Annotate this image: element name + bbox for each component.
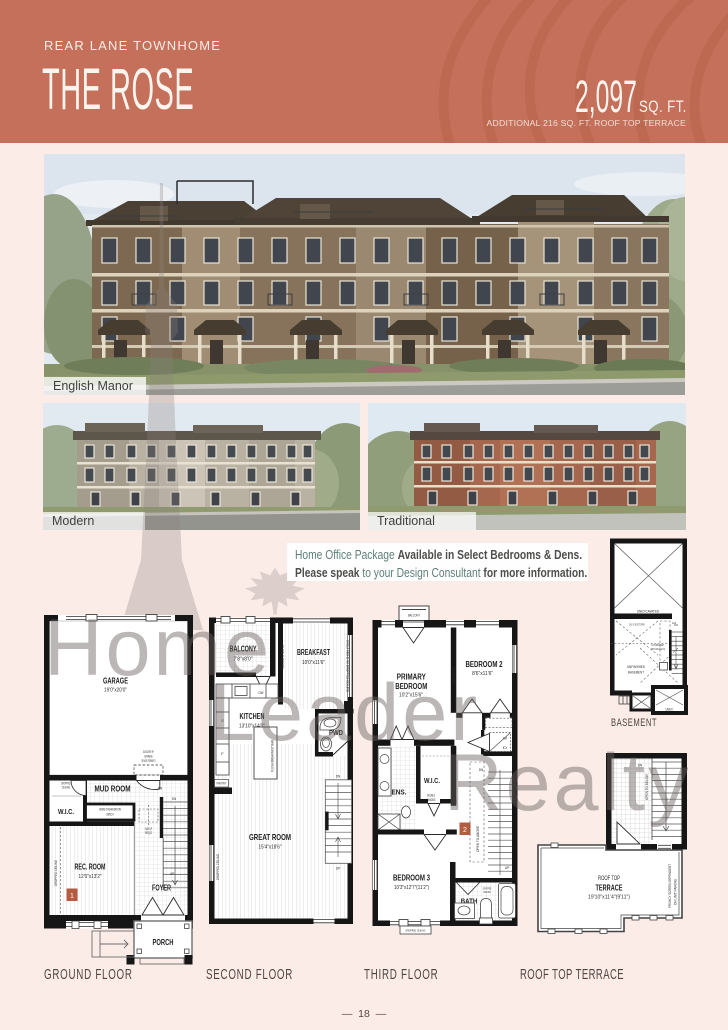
svg-text:KITCHEN: KITCHEN [240,712,265,721]
svg-text:ROOF TOP: ROOF TOP [598,876,620,882]
svg-text:HOME ORGANIZATION: HOME ORGANIZATION [99,808,121,812]
svg-text:FLUSH BREAKFAST BAR: FLUSH BREAKFAST BAR [271,739,275,772]
svg-text:BI-FOLD DOORS: BI-FOLD DOORS [281,645,285,669]
svg-text:BEDROOM 2: BEDROOM 2 [466,660,503,669]
svg-text:MUD ROOM: MUD ROOM [95,785,131,794]
svg-text:ON UNIT PAIRING: ON UNIT PAIRING [674,879,678,905]
svg-text:15'4"x18'6": 15'4"x18'6" [259,845,282,851]
svg-text:BASEMENT: BASEMENT [628,670,644,675]
svg-text:GRADE: GRADE [144,755,153,759]
svg-text:PRIMARY: PRIMARY [397,673,427,682]
svg-text:19'0"x20'0": 19'0"x20'0" [104,688,127,694]
svg-text:PWD: PWD [329,730,343,737]
svg-text:OPEN TO BELOW: OPEN TO BELOW [645,773,649,800]
svg-text:UNEX.: UNEX. [666,708,674,712]
svg-text:CEILING: CEILING [483,890,491,894]
svg-text:W.I.C.: W.I.C. [58,809,74,816]
svg-text:SHELF NICHE W/ DROPPED CEILING: SHELF NICHE W/ DROPPED CEILING [345,640,349,692]
svg-text:DROPPED CEILING: DROPPED CEILING [406,929,426,933]
svg-text:PANTRY: PANTRY [217,782,228,786]
svg-text:DN: DN [172,797,177,801]
svg-text:10'2"x15'6": 10'2"x15'6" [399,693,423,699]
svg-text:DN: DN [638,764,643,768]
svg-text:UNFINISHED: UNFINISHED [627,664,645,669]
svg-text:TERRACE: TERRACE [596,883,623,893]
svg-text:12'0"x13'2": 12'0"x13'2" [79,874,102,880]
svg-text:DOOR IF: DOOR IF [143,750,155,754]
svg-text:BENCH: BENCH [107,813,114,817]
svg-text:1: 1 [70,893,74,900]
svg-text:BALCONY: BALCONY [230,645,257,654]
svg-text:ENS.: ENS. [392,790,407,797]
svg-text:DN: DN [158,787,163,791]
svg-text:UP: UP [170,872,175,876]
svg-text:DROPPED CEILING: DROPPED CEILING [216,854,220,880]
svg-text:CAC IF DUCTS PER.: CAC IF DUCTS PER. [629,623,645,627]
svg-text:DW: DW [259,691,264,695]
svg-text:PORCH: PORCH [153,938,174,947]
svg-text:7'8"x8'0": 7'8"x8'0" [234,657,253,663]
svg-text:OPEN TO ABOVE: OPEN TO ABOVE [476,825,480,852]
svg-text:8'6"x11'6": 8'6"x11'6" [472,671,493,677]
svg-text:BREAKFAST: BREAKFAST [297,648,330,657]
svg-text:O/H ATTIC: O/H ATTIC [452,665,456,684]
svg-text:PRIVACY SCREEN DEPENDENT: PRIVACY SCREEN DEPENDENT [668,864,672,908]
svg-text:FOYER: FOYER [152,884,171,893]
svg-text:W.I.C.: W.I.C. [424,778,440,785]
svg-text:CEILING: CEILING [62,786,71,790]
svg-text:10'3"x12'7"(11'2"): 10'3"x12'7"(11'2") [394,885,429,891]
svg-text:REQ'D: REQ'D [145,831,152,835]
svg-text:GARAGE: GARAGE [103,677,128,686]
svg-text:DN: DN [479,768,484,772]
svg-text:UP: UP [336,867,341,871]
svg-text:UP: UP [505,866,510,870]
svg-text:SPACE PERMITS: SPACE PERMITS [142,759,156,763]
svg-text:DN: DN [674,623,678,627]
svg-text:REC. ROOM: REC. ROOM [75,863,106,872]
svg-text:10'0"x11'6": 10'0"x11'6" [302,660,325,666]
svg-text:(3PC ROUGH-IN): (3PC ROUGH-IN) [651,647,665,651]
svg-text:BEDROOM 3: BEDROOM 3 [393,874,430,883]
svg-text:UNEXCAVATED: UNEXCAVATED [637,609,660,614]
svg-text:BALCONY: BALCONY [408,614,420,618]
svg-text:DN: DN [336,775,341,779]
svg-text:BEDROOM: BEDROOM [395,682,427,691]
svg-text:2: 2 [463,827,467,834]
svg-text:19'10"x11'4"(9'11"): 19'10"x11'4"(9'11") [588,895,630,901]
svg-text:GREAT ROOM: GREAT ROOM [249,833,291,842]
svg-text:S: S [221,718,224,723]
svg-text:DROPPED CEILING: DROPPED CEILING [54,860,58,886]
